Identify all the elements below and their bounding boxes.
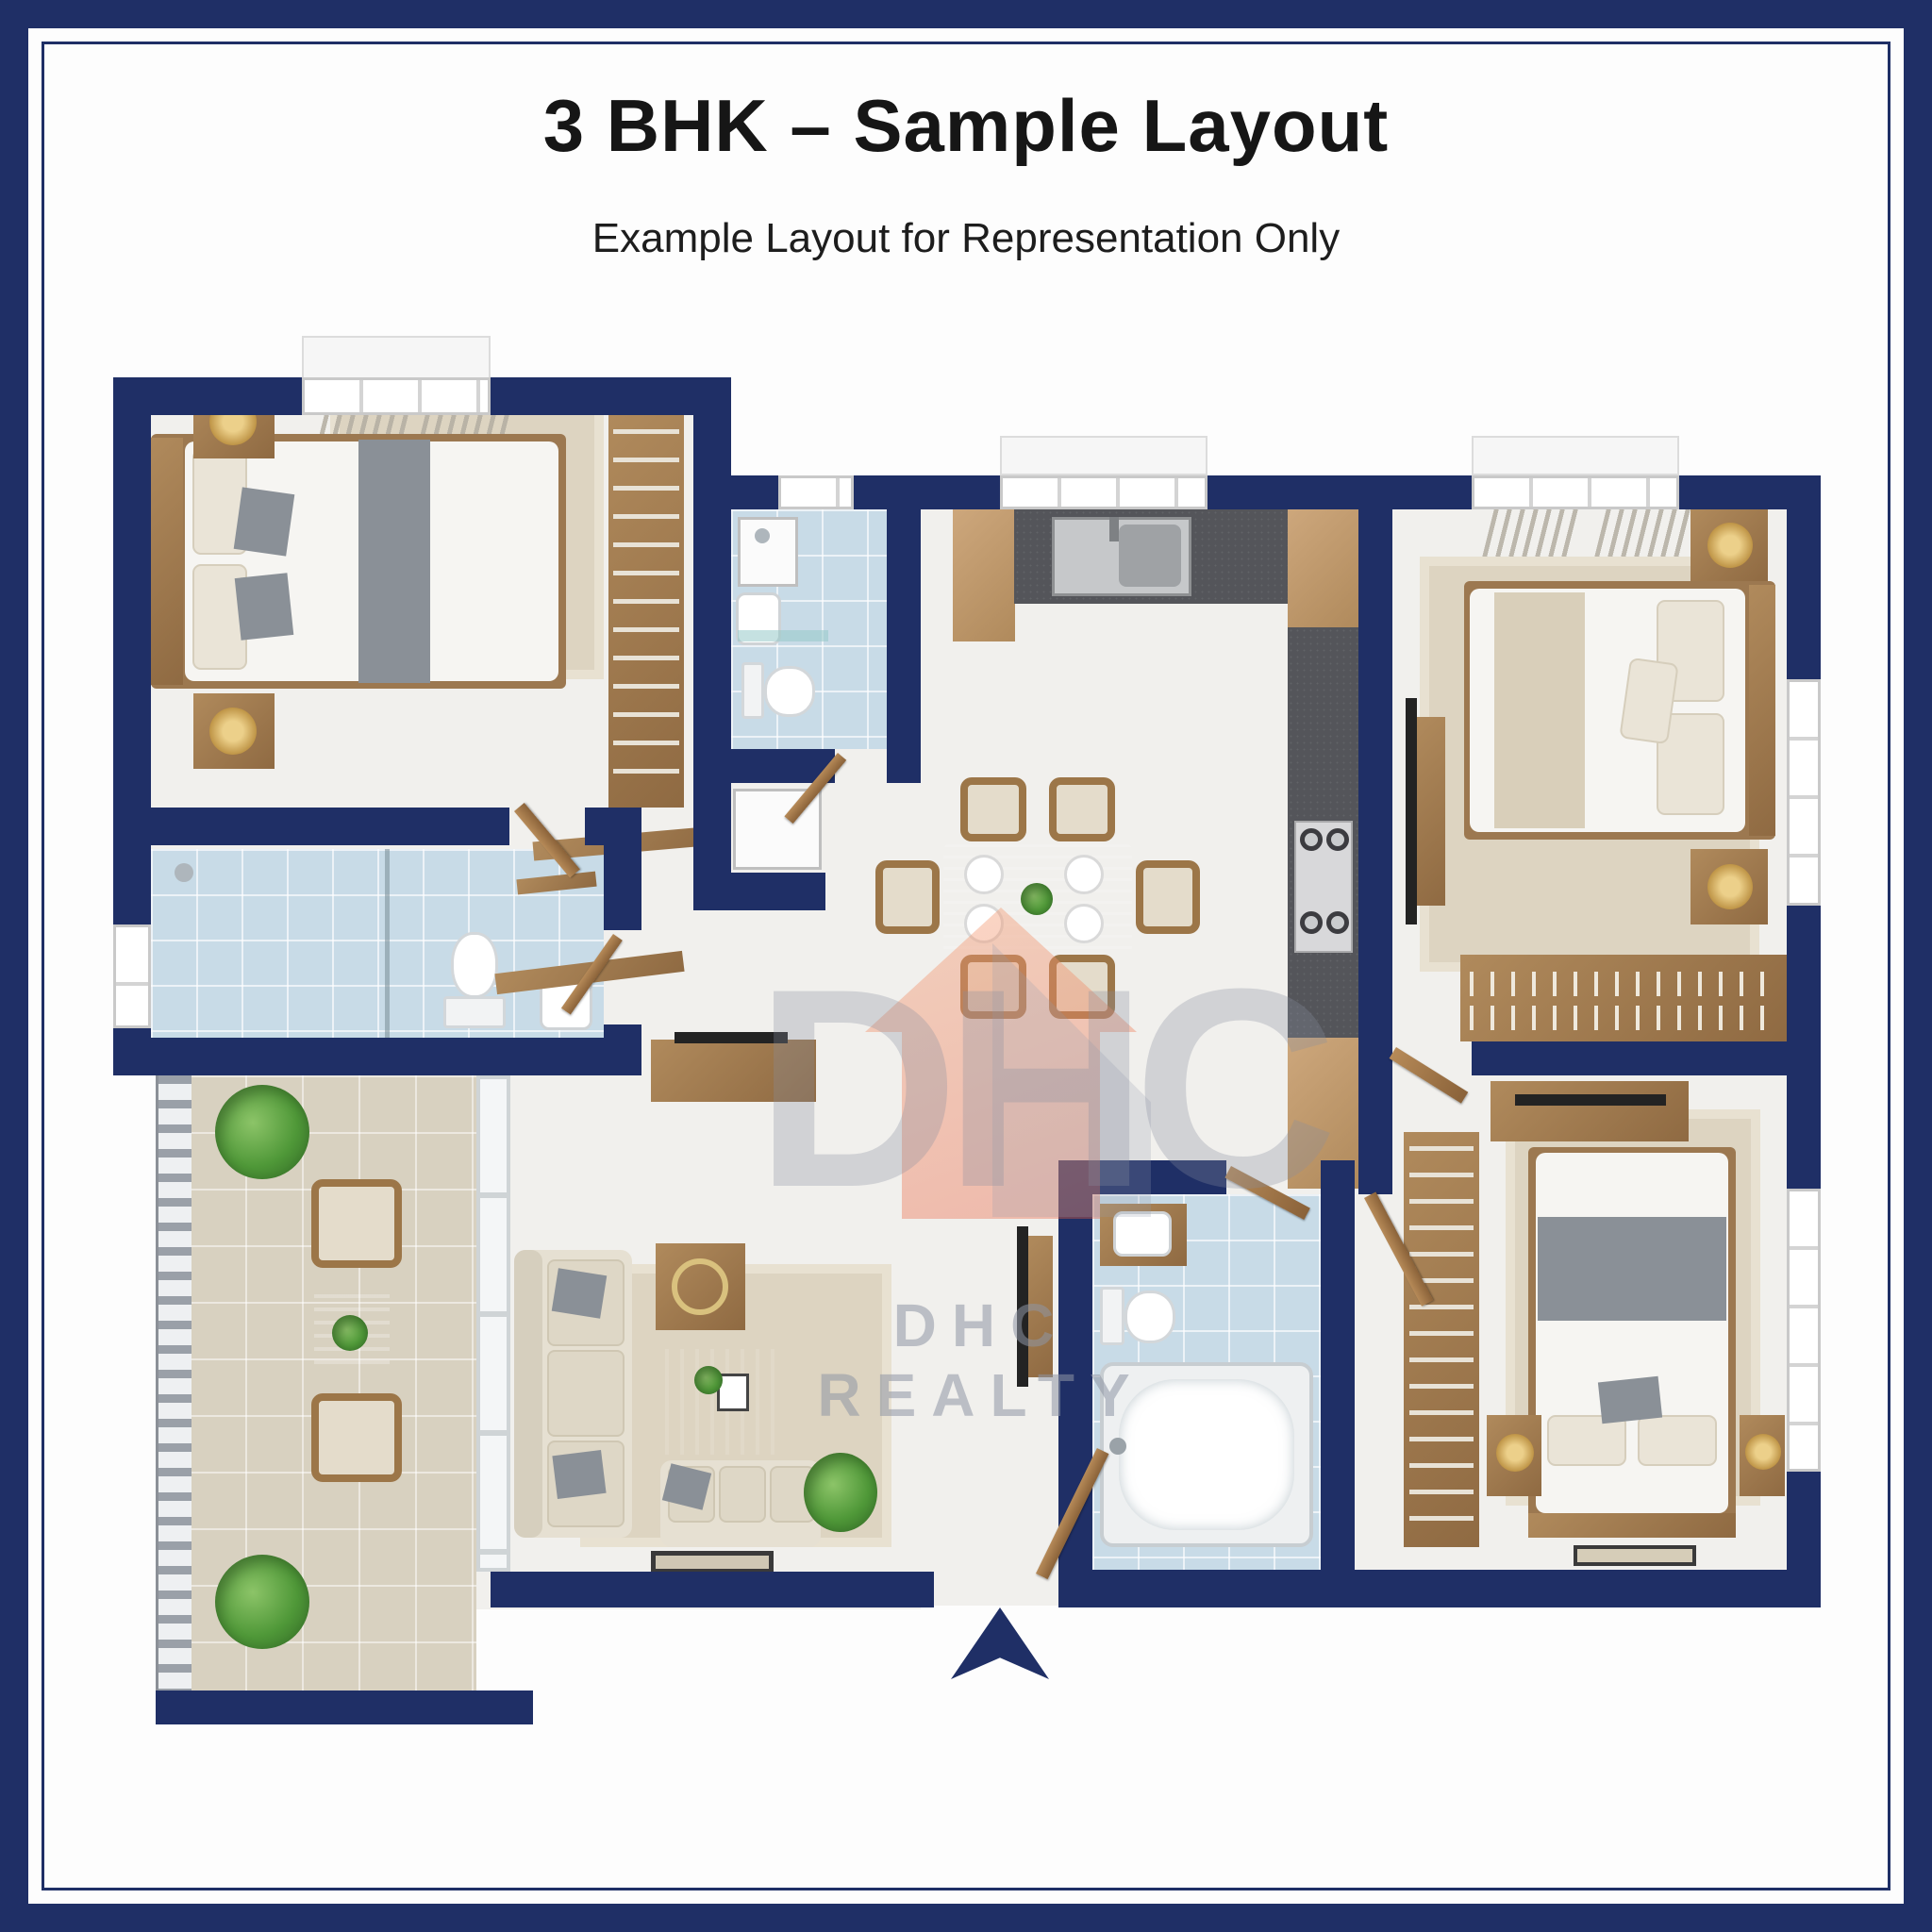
dining-centerpiece <box>1021 883 1053 915</box>
bedroom1-lamp-bottom-icon <box>209 708 257 755</box>
wall-bath2-right-lower <box>604 1024 641 1075</box>
dining-chair-left <box>875 860 940 934</box>
bedroom2-headboard <box>1749 585 1775 836</box>
bathroom1-window <box>778 475 854 509</box>
living-sofa-vertical-back <box>514 1250 542 1538</box>
wall-bath2-bottom <box>113 1038 641 1075</box>
bathroom2-toilet-bowl <box>451 932 498 998</box>
dining-chair-right <box>1136 860 1200 934</box>
dining-plate-1 <box>964 855 1004 894</box>
wall-bath2-right-upper <box>604 808 641 930</box>
bedroom1-gray-runner <box>358 440 430 683</box>
wall-kitchen-bed2-divider <box>1358 475 1392 1041</box>
bedroom1-window <box>302 377 491 415</box>
bathroom2-toilet-tank <box>443 996 506 1028</box>
kitchen-window-bay <box>1000 436 1207 475</box>
wall-right-upper <box>1787 475 1821 679</box>
bedroom1-throw-pillow-2 <box>235 573 294 640</box>
wall-utility-bottom <box>693 873 825 910</box>
bathroom1-toilet-bowl <box>764 666 815 717</box>
bedroom3-doormat <box>1574 1545 1696 1566</box>
bedroom3-headboard <box>1528 1513 1736 1538</box>
wall-bed2-bed3-divider <box>1472 1041 1787 1075</box>
bedroom3-lamp-left-icon <box>1496 1434 1534 1472</box>
kitchen-cabinet-left <box>953 509 1015 641</box>
wall-bed1-bottom-left <box>113 808 509 845</box>
bedroom2-lamp-bottom-icon <box>1707 864 1753 909</box>
bedroom3-wardrobe-rails <box>1409 1146 1474 1533</box>
wall-bed2-top-left <box>1392 475 1472 509</box>
bedroom2-side-window <box>1787 679 1821 906</box>
bedroom3-window <box>1787 1189 1821 1472</box>
wall-bath3-top-corner <box>1321 1160 1355 1194</box>
bathroom1-toilet-tank <box>741 662 764 719</box>
balcony-railing <box>156 1075 192 1690</box>
stove-burner-1 <box>1300 828 1323 851</box>
wall-living-bottom <box>491 1572 934 1607</box>
balcony-plant-bottom <box>215 1555 309 1649</box>
kitchen-sink-basin <box>1119 525 1181 587</box>
balcony-table-plant <box>332 1315 368 1351</box>
page-subtitle: Example Layout for Representation Only <box>0 215 1932 262</box>
bedroom3-dresser <box>1491 1081 1689 1141</box>
dining-chair-top-2 <box>1049 777 1115 841</box>
wall-bath1-top-left <box>731 475 778 509</box>
bedroom1-headboard <box>151 438 183 685</box>
dining-chair-top-1 <box>960 777 1026 841</box>
bedroom2-tv <box>1406 698 1417 924</box>
bedroom3-dresser-tv <box>1515 1094 1666 1106</box>
wall-bottom-right <box>1058 1570 1821 1607</box>
bookshelf-row-2 <box>1470 1006 1777 1030</box>
bedroom2-lamp-top-icon <box>1707 523 1753 568</box>
bedroom2-window <box>1472 475 1679 509</box>
bathroom2-window <box>113 924 151 1028</box>
bedroom2-window-bay <box>1472 436 1679 475</box>
wall-kitchen-top-left <box>921 475 1000 509</box>
floor-plan-page: 3 BHK – Sample Layout Example Layout for… <box>0 0 1932 1932</box>
bookshelf-row-1 <box>1470 972 1777 996</box>
stove-burner-4 <box>1326 911 1349 934</box>
balcony-armchair-2 <box>311 1393 402 1482</box>
wall-balcony-bottom <box>156 1690 533 1724</box>
wall-kitchen-top-right <box>1207 475 1358 509</box>
balcony-armchair-1 <box>311 1179 402 1268</box>
wall-bed2-top-right <box>1679 475 1787 509</box>
kitchen-window <box>1000 475 1207 509</box>
bathroom1-shower-tray <box>738 517 798 587</box>
kitchen-faucet-icon <box>1109 517 1119 541</box>
bathtub-faucet-icon <box>1109 1438 1126 1455</box>
balcony-glass-wall <box>476 1075 510 1572</box>
kitchen-cabinet-corner <box>1288 509 1358 627</box>
living-doormat <box>651 1551 774 1574</box>
dining-plate-2 <box>1064 855 1104 894</box>
bedroom2-beige-runner <box>1494 592 1585 828</box>
bedroom1-window-bay <box>302 336 491 379</box>
bathroom2-shower-glass <box>385 849 390 1038</box>
bathroom1-shower-head-icon <box>755 528 770 543</box>
living-plant <box>804 1453 877 1532</box>
bedroom3-gray-blanket <box>1538 1217 1726 1321</box>
watermark-monogram: DHC <box>755 924 1226 1251</box>
bedroom3-pillow-2 <box>1638 1415 1717 1466</box>
bathroom2-shower-head-icon <box>175 863 193 882</box>
wall-bath1-right <box>887 475 921 783</box>
balcony-plant-top <box>215 1085 309 1179</box>
page-title: 3 BHK – Sample Layout <box>0 83 1932 169</box>
wall-bath3-right <box>1321 1194 1355 1572</box>
wall-bed1-bath1-divider <box>693 377 731 783</box>
living-sofa2-cushion-2 <box>719 1466 766 1523</box>
living-sofa-cushion-2 <box>547 1350 625 1437</box>
living-gray-pillow-2 <box>552 1450 606 1499</box>
bedroom3-lamp-right-icon <box>1745 1434 1781 1470</box>
bathroom1-glass-shelf <box>738 630 828 641</box>
wall-right-middle <box>1787 906 1821 1189</box>
bedroom3-gray-pillow <box>1598 1376 1662 1424</box>
bedroom1-wardrobe-rails <box>613 429 679 788</box>
bedroom3-pillow-1 <box>1547 1415 1626 1466</box>
wall-hall-vertical <box>1358 1041 1392 1194</box>
stove-burner-2 <box>1326 828 1349 851</box>
living-gray-pillow-1 <box>552 1268 608 1319</box>
watermark-brand: DHC REALTY <box>717 1291 1245 1430</box>
bedroom2-tv-console <box>1417 717 1445 906</box>
bedroom1-throw-pillow-1 <box>234 487 295 556</box>
